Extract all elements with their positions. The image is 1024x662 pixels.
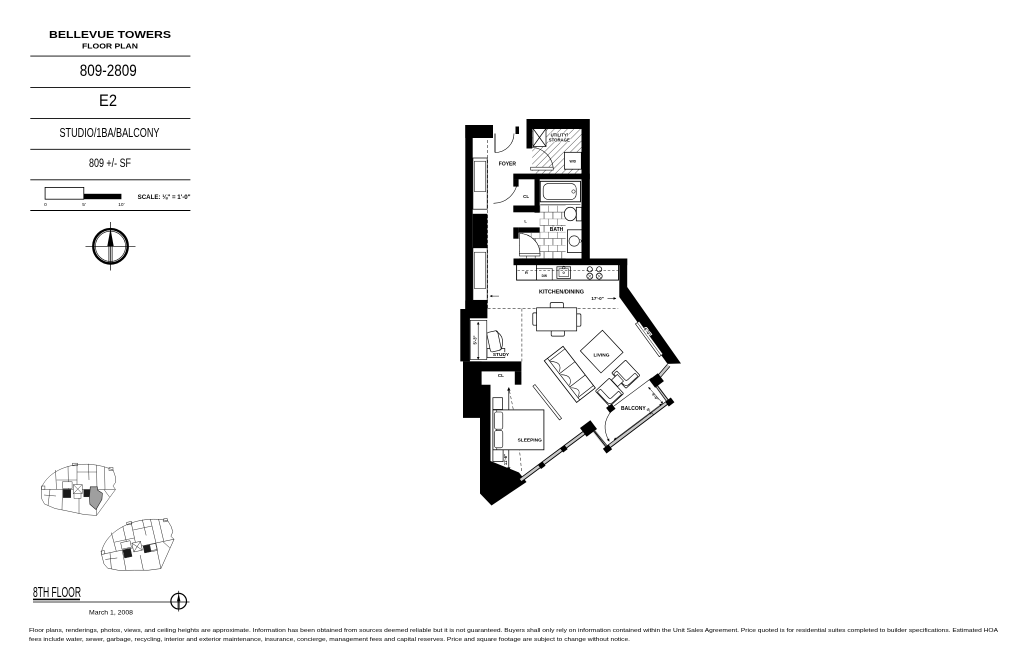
svg-text:CL: CL — [523, 194, 529, 199]
svg-text:KITCHEN/DINING: KITCHEN/DINING — [539, 289, 584, 295]
svg-text:R: R — [525, 270, 528, 275]
svg-text:5': 5' — [82, 202, 86, 208]
svg-text:5'-3": 5'-3" — [473, 335, 478, 344]
svg-text:10': 10' — [118, 202, 124, 208]
svg-text:809-2809: 809-2809 — [80, 62, 137, 80]
svg-text:11'-6": 11'-6" — [503, 454, 508, 465]
svg-text:L: L — [524, 219, 527, 224]
svg-text:BALCONY: BALCONY — [621, 406, 646, 412]
svg-text:SCALE: ⅛" = 1'-0": SCALE: ⅛" = 1'-0" — [138, 194, 191, 201]
svg-text:STUDIO/1BA/BALCONY: STUDIO/1BA/BALCONY — [60, 126, 160, 140]
svg-text:SLEEPING: SLEEPING — [518, 437, 543, 443]
svg-text:0: 0 — [44, 202, 47, 208]
svg-text:fees include water, sewer, gar: fees include water, sewer, garbage, recy… — [29, 637, 630, 643]
svg-text:LIVING: LIVING — [594, 352, 610, 358]
svg-text:FOYER: FOYER — [499, 162, 517, 168]
svg-text:BELLEVUE TOWERS: BELLEVUE TOWERS — [49, 30, 171, 41]
svg-text:W/D: W/D — [570, 159, 577, 163]
svg-text:BATH: BATH — [550, 227, 564, 233]
svg-text:DW: DW — [542, 274, 547, 278]
svg-text:March 1, 2008: March 1, 2008 — [89, 611, 134, 617]
svg-text:17'-0": 17'-0" — [591, 296, 603, 301]
svg-text:809 +/- SF: 809 +/- SF — [89, 158, 131, 170]
svg-text:4'-0": 4'-0" — [651, 392, 660, 402]
svg-text:STORAGE: STORAGE — [549, 137, 570, 142]
svg-text:STUDY: STUDY — [493, 352, 510, 358]
svg-text:E2: E2 — [99, 92, 117, 110]
svg-text:CL: CL — [498, 373, 504, 378]
svg-text:8TH FLOOR: 8TH FLOOR — [33, 585, 81, 601]
svg-text:Floor plans, renderings, photo: Floor plans, renderings, photos, views, … — [29, 628, 998, 634]
svg-text:FLOOR PLAN: FLOOR PLAN — [82, 44, 138, 51]
